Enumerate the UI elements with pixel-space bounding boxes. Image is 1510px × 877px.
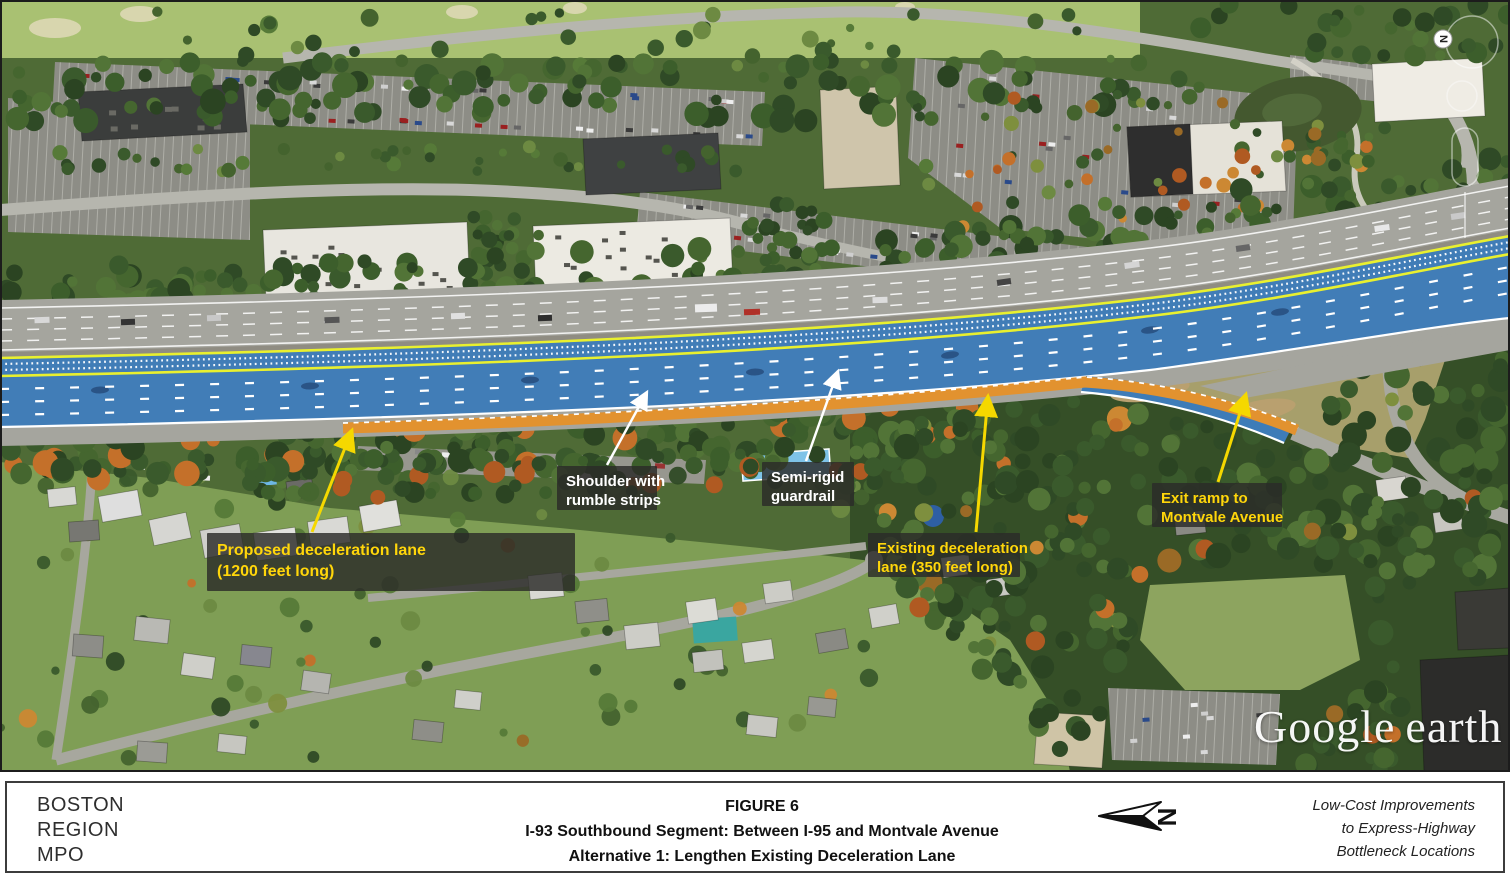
callout-existing-deceleration-lane: Existing deceleration lane (350 feet lon… [868,533,1020,577]
figure-title: I-93 Southbound Segment: Between I-95 an… [362,819,1162,844]
north-letter: N [1152,808,1182,827]
callout-shoulder-rumble-strips: Shoulder with rumble strips [557,466,657,510]
google-earth-watermark: Googleearth [1254,700,1502,753]
callout-line: rumble strips [566,491,648,510]
agency-line: MPO [37,843,124,868]
aerial-imagery: N [0,0,1510,772]
project-name: Low-Cost Improvements to Express-Highway… [1312,794,1475,863]
figure-footer: BOSTON REGION MPO FIGURE 6 I-93 Southbou… [5,781,1505,873]
agency-line: BOSTON [37,793,124,818]
figure-page: N Proposed deceleration lane (1200 feet … [0,0,1510,877]
callout-semi-rigid-guardrail: Semi-rigid guardrail [762,462,854,506]
project-line: Bottleneck Locations [1312,840,1475,863]
project-line: to Express-Highway [1312,817,1475,840]
callout-line: lane (350 feet long) [877,558,1011,577]
watermark-google: Google [1254,701,1395,752]
agency-line: REGION [37,818,124,843]
callout-line: Shoulder with [566,472,648,491]
callout-line: (1200 feet long) [217,561,565,582]
figure-title-block: FIGURE 6 I-93 Southbound Segment: Betwee… [362,794,1162,869]
callout-line: guardrail [771,487,845,506]
agency-name: BOSTON REGION MPO [37,793,124,868]
callout-line: Exit ramp to [1161,489,1273,508]
compass-north-letter: N [1437,35,1449,43]
callout-line: Existing deceleration [877,539,1011,558]
aerial-map: N Proposed deceleration lane (1200 feet … [0,0,1510,772]
callout-exit-ramp-montvale: Exit ramp to Montvale Avenue [1152,483,1282,527]
callout-proposed-deceleration-lane: Proposed deceleration lane (1200 feet lo… [207,533,575,591]
watermark-earth: earth [1405,701,1502,752]
callout-line: Semi-rigid [771,468,845,487]
figure-subtitle: Alternative 1: Lengthen Existing Deceler… [362,844,1162,869]
callout-line: Montvale Avenue [1161,508,1273,527]
figure-number: FIGURE 6 [362,794,1162,819]
north-arrow-icon: N [1093,795,1188,837]
callout-line: Proposed deceleration lane [217,540,565,561]
project-line: Low-Cost Improvements [1312,794,1475,817]
